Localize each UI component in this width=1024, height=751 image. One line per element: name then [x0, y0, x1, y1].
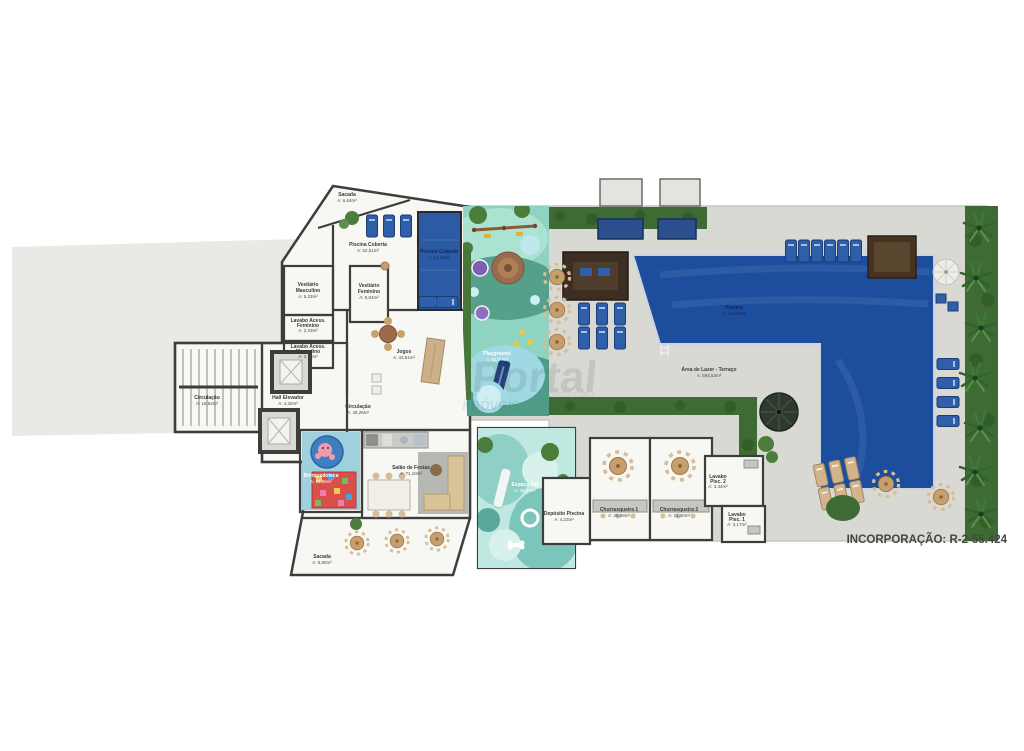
daybed-1: [598, 219, 643, 239]
room-area: A: 3,34m²: [708, 484, 728, 489]
floor-plan-svg: Portal imóveis CRECI 5735-J Sacada A: 6,…: [0, 0, 1024, 751]
pool-chair: [936, 294, 946, 303]
pergola-box-1: [600, 179, 642, 206]
room-area: A: 142,61m²: [722, 311, 747, 316]
white-umbrella: [933, 259, 959, 285]
room-area: A: 5,23m²: [298, 294, 318, 299]
plant: [350, 518, 362, 530]
bbq-room-1: [590, 438, 650, 540]
pool-lounger: [579, 327, 590, 349]
room-area: A: 2,23m²: [298, 328, 318, 333]
pool-lounger: [786, 240, 797, 262]
chair: [372, 374, 381, 382]
spiral-rug: [492, 252, 524, 284]
bush: [758, 436, 774, 452]
pergola-box-2: [660, 179, 700, 206]
playroom-round-rug: [311, 436, 343, 468]
pool-lounger: [799, 240, 810, 262]
indoor-lounger: [401, 215, 412, 237]
room-area: A: 2,18m²: [298, 354, 318, 359]
room-area: A: 8,80m²: [312, 560, 332, 565]
elevator-2: [258, 408, 300, 454]
side-table: [381, 262, 389, 270]
pool-lounger: [615, 327, 626, 349]
party-room-lounge: [418, 452, 468, 514]
room-area: A: 6,64m²: [337, 198, 357, 203]
dark-umbrella: [760, 393, 798, 431]
room-label: Área de Lazer - Terraço: [681, 366, 736, 373]
plant: [339, 219, 349, 229]
room-area: A: 43,51m²: [393, 355, 416, 360]
chair: [372, 386, 381, 394]
pool-lounger: [851, 240, 862, 262]
room-area: A: 26,98m²: [608, 513, 631, 518]
pool-chair: [948, 302, 958, 311]
room-area: A: 18,52m²: [196, 401, 219, 406]
room-area: A: 15,55m²: [310, 479, 333, 484]
pool-lounger: [812, 240, 823, 262]
daybed-2: [658, 219, 696, 239]
room-area: A: 4,23m²: [554, 517, 574, 522]
hedge-right: [965, 206, 998, 541]
indoor-lounger: [384, 215, 395, 237]
indoor-lounger: [436, 297, 458, 308]
room-area: A: 62,51m²: [357, 248, 380, 253]
floor-plan-canvas: Portal imóveis CRECI 5735-J Sacada A: 6,…: [0, 0, 1024, 751]
room-area: A: 28,23m²: [514, 488, 537, 493]
room-area: A: 48,26m²: [347, 410, 370, 415]
pool-lounger: [937, 359, 959, 370]
cabana: [563, 252, 628, 300]
bar-kiosk: [868, 236, 916, 278]
room-area: A: 584,53m²: [697, 373, 722, 378]
bush: [766, 451, 778, 463]
room-area: A: 3,17m²: [727, 522, 747, 527]
pool-lounger: [937, 378, 959, 389]
room-area: A: 13,15m²: [428, 255, 451, 260]
pool-lounger: [579, 303, 590, 325]
wc-fixture: [748, 526, 760, 534]
incorporation-text: INCORPORAÇÃO: R-2-55.424: [847, 533, 1008, 546]
pool-lounger: [825, 240, 836, 262]
svg-text:CRECI 5735-J: CRECI 5735-J: [548, 392, 594, 399]
room-area: A: 21,00m²: [668, 513, 691, 518]
pool-lounger: [597, 303, 608, 325]
pool-lounger: [937, 397, 959, 408]
room-area: A: 71,10m²: [400, 471, 423, 476]
indoor-lounger: [367, 215, 378, 237]
party-room-kitchen: [364, 432, 428, 448]
pool-lounger: [597, 327, 608, 349]
room-area: A: 63,00m²: [486, 357, 509, 362]
room-area: A: 4,32m²: [278, 401, 298, 406]
pool-lounger: [937, 416, 959, 427]
wc-fixture: [744, 460, 758, 468]
pool-lounger: [615, 303, 626, 325]
svg-text:imóveis: imóveis: [461, 395, 521, 414]
pool-lounger: [838, 240, 849, 262]
room-area: A: 5,04m²: [359, 295, 379, 300]
indoor-pool: [418, 212, 461, 310]
bush: [826, 495, 860, 521]
